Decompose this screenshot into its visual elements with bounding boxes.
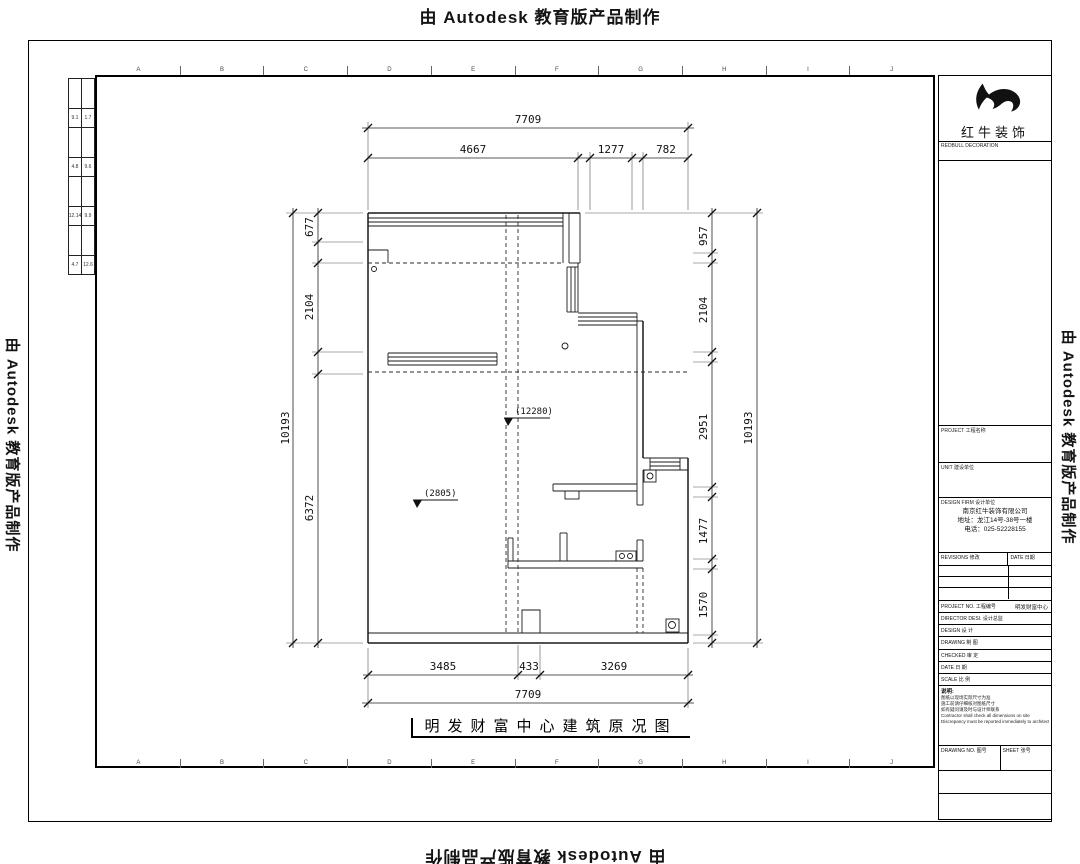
dim-top-segment: 4667 [460,143,487,156]
elevation-value: (2805) [424,489,457,499]
dim-right-segment: 2104 [697,296,710,323]
dim-bottom-segment: 433 [519,660,539,673]
dim-top-segment: 1277 [598,143,625,156]
cad-drawing-sheet: 由 Autodesk 教育版产品制作 由 Autodesk 教育版产品制作 由 … [0,0,1080,864]
dim-top-overall: 7709 [515,113,542,126]
dim-bottom-segment: 3269 [601,660,628,673]
dim-bottom-segment: 3485 [430,660,457,673]
dim-right-overall: 10193 [742,411,755,444]
dim-right-segment: 957 [697,226,710,246]
drawing-title: 明发财富中心建筑原况图 [424,717,677,735]
elevation-marker-upper: (12280) [504,407,553,426]
floor-plan-drawing: (12280) (2805) [0,0,1080,864]
dim-bottom-overall: 7709 [515,688,542,701]
exterior-walls [368,213,688,643]
dim-right-segment: 1477 [697,518,710,545]
dashed-projection-lines [368,215,688,633]
dim-left-overall: 10193 [279,411,292,444]
dim-right-segment: 1570 [697,592,710,619]
windows-and-inner-walls [368,213,688,633]
elevation-value: (12280) [515,407,553,417]
dim-left-segment: 2104 [303,293,316,320]
dim-top-segment: 782 [656,143,676,156]
dim-right-segment: 2951 [697,414,710,441]
elevation-marker-lower: (2805) [413,489,458,508]
dim-left-segment: 6372 [303,495,316,522]
dim-left-segment: 677 [303,217,316,237]
